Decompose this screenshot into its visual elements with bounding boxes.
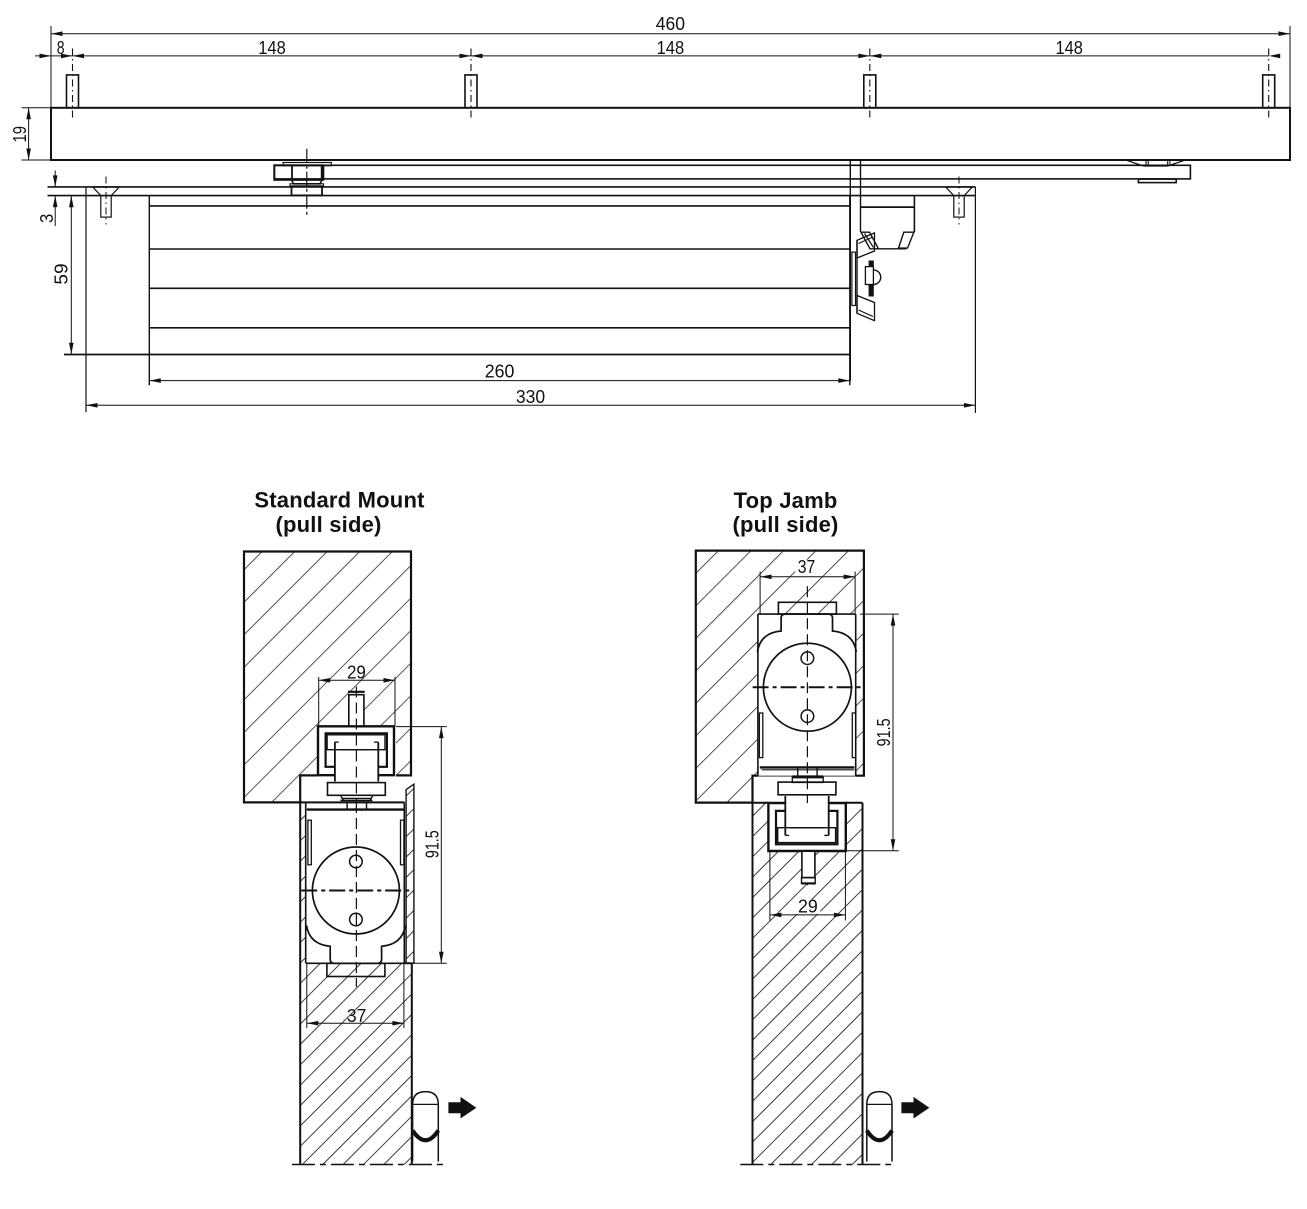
svg-text:330: 330 (516, 386, 545, 407)
svg-text:148: 148 (258, 37, 286, 58)
svg-text:59: 59 (50, 263, 71, 284)
svg-text:91.5: 91.5 (873, 718, 894, 746)
svg-text:37: 37 (798, 556, 816, 577)
svg-text:(pull side): (pull side) (732, 512, 838, 537)
svg-text:260: 260 (485, 361, 515, 382)
svg-text:29: 29 (347, 661, 366, 682)
svg-text:19: 19 (9, 126, 30, 143)
svg-text:91.5: 91.5 (422, 830, 443, 858)
svg-text:29: 29 (798, 895, 818, 916)
svg-text:37: 37 (347, 1005, 367, 1026)
svg-text:3: 3 (36, 214, 57, 223)
svg-text:460: 460 (656, 13, 685, 34)
svg-text:(pull side): (pull side) (275, 512, 381, 537)
svg-text:Top Jamb: Top Jamb (734, 488, 838, 513)
svg-text:8: 8 (57, 37, 65, 58)
svg-text:148: 148 (657, 37, 685, 58)
svg-text:Standard Mount: Standard Mount (254, 488, 425, 513)
svg-text:148: 148 (1055, 37, 1083, 58)
